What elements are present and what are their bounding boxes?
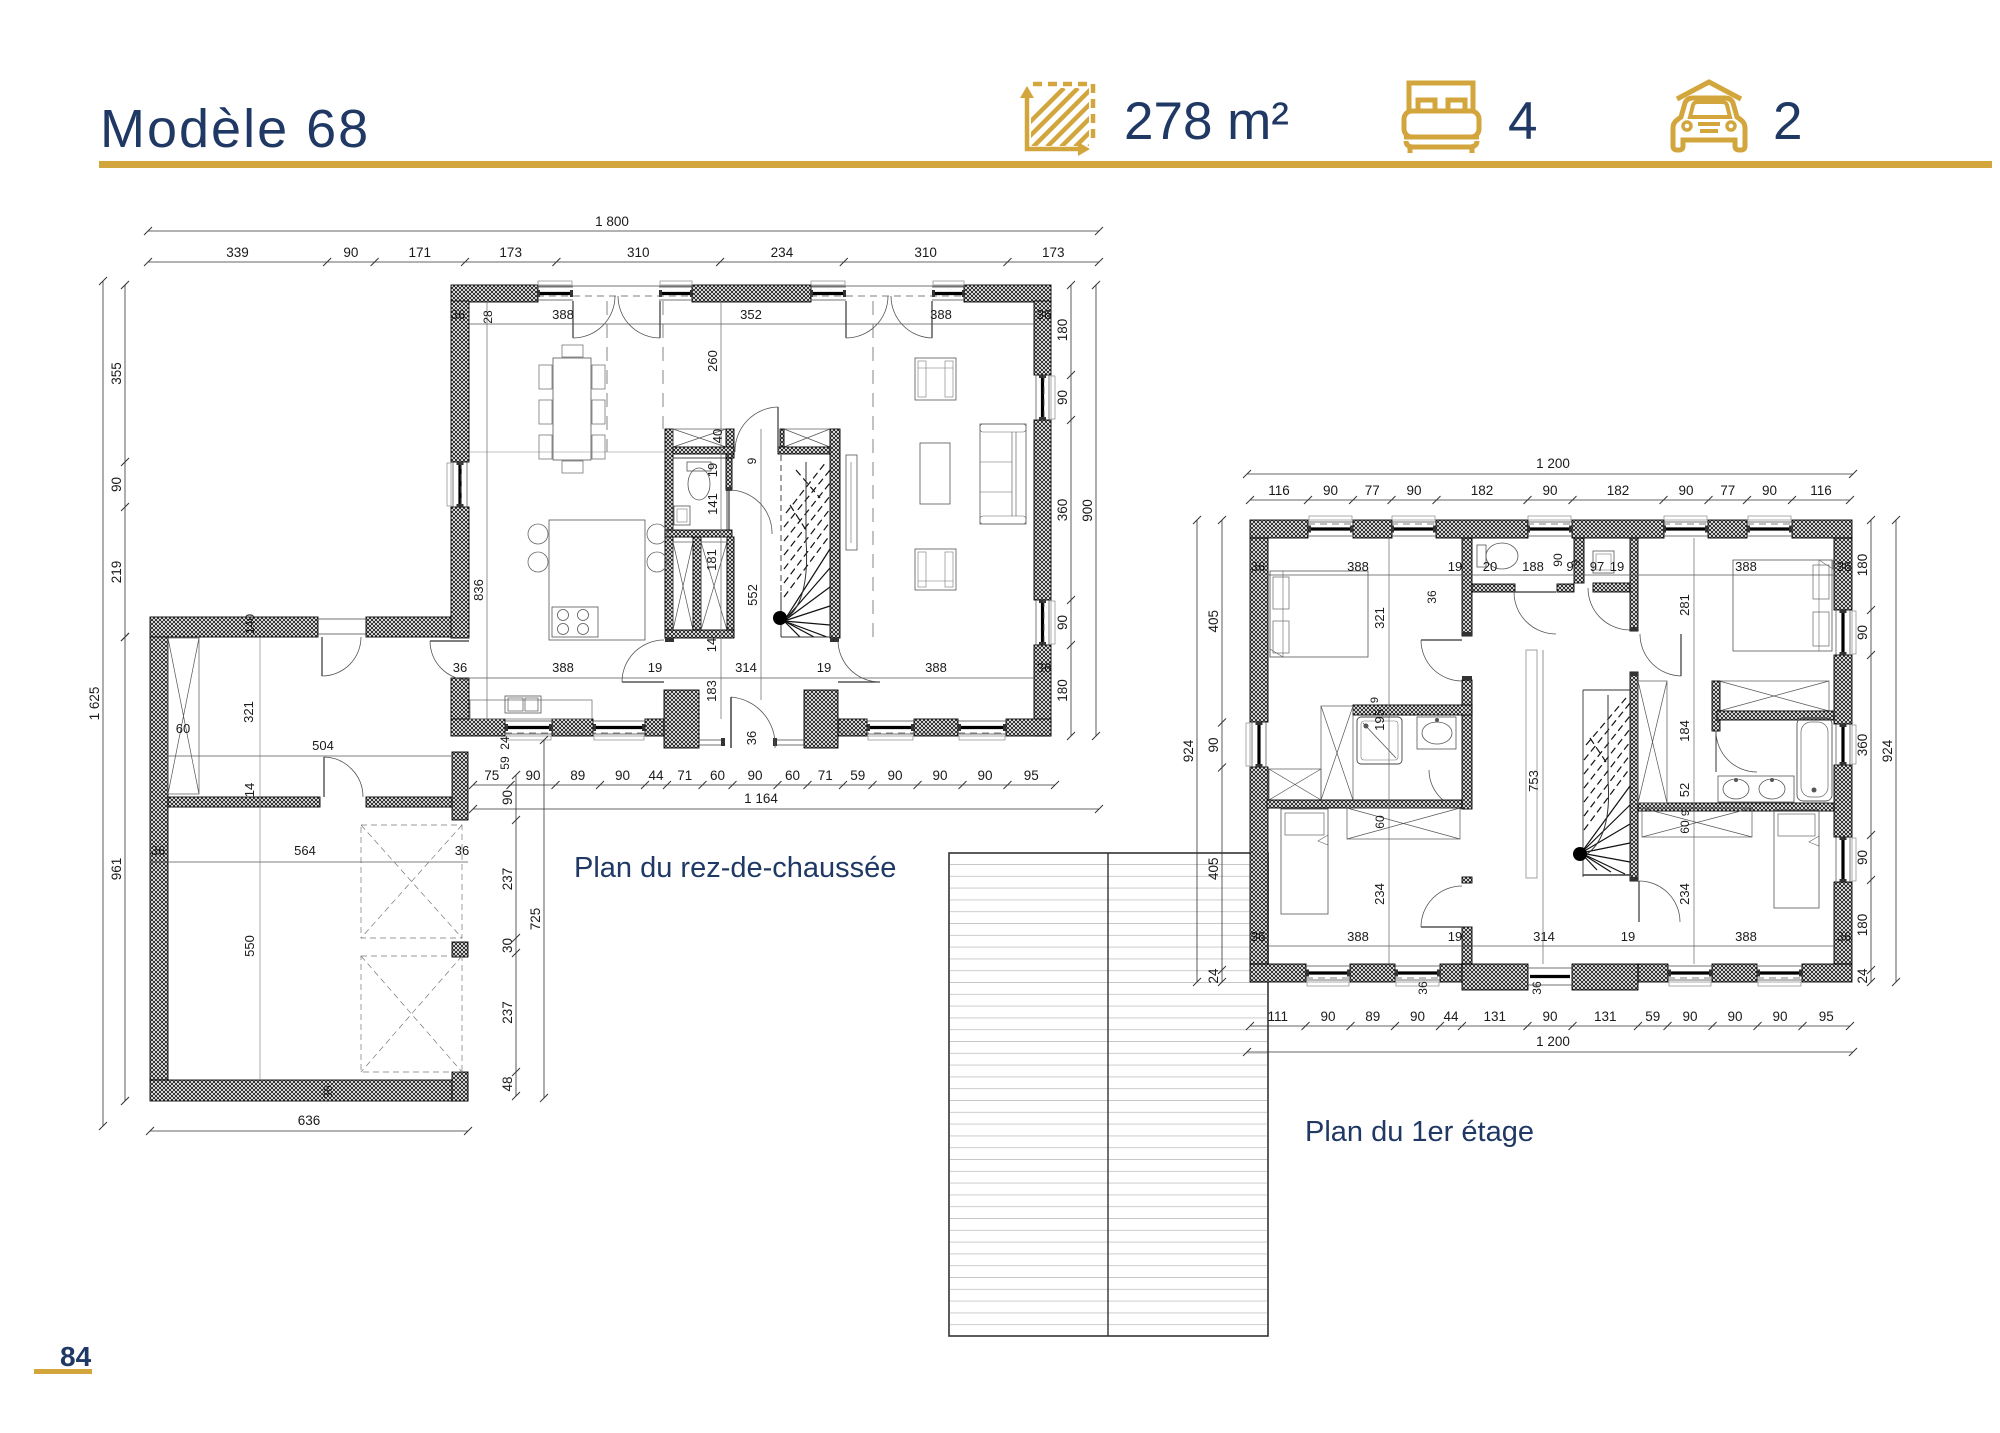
svg-text:44: 44 bbox=[648, 768, 664, 783]
svg-text:90: 90 bbox=[887, 768, 902, 783]
svg-text:19: 19 bbox=[1621, 929, 1635, 944]
svg-text:36: 36 bbox=[453, 660, 467, 675]
svg-text:310: 310 bbox=[914, 245, 937, 260]
svg-text:173: 173 bbox=[1042, 245, 1065, 260]
svg-text:116: 116 bbox=[1810, 483, 1832, 498]
svg-text:900: 900 bbox=[1080, 499, 1095, 522]
svg-text:90: 90 bbox=[977, 768, 992, 783]
svg-text:36: 36 bbox=[1425, 590, 1439, 604]
svg-text:388: 388 bbox=[1735, 559, 1757, 574]
svg-text:19: 19 bbox=[817, 660, 831, 675]
svg-text:1 200: 1 200 bbox=[1536, 1034, 1570, 1049]
svg-text:219: 219 bbox=[109, 561, 124, 584]
svg-text:725: 725 bbox=[528, 908, 543, 931]
svg-text:60: 60 bbox=[176, 721, 190, 736]
svg-text:71: 71 bbox=[818, 768, 833, 783]
svg-text:90: 90 bbox=[747, 768, 762, 783]
svg-text:564: 564 bbox=[294, 843, 316, 858]
svg-text:131: 131 bbox=[1594, 1009, 1617, 1024]
svg-text:140: 140 bbox=[243, 614, 257, 634]
svg-text:1 200: 1 200 bbox=[1536, 456, 1570, 471]
svg-text:360: 360 bbox=[1055, 499, 1070, 522]
svg-text:234: 234 bbox=[1677, 883, 1692, 905]
svg-text:90: 90 bbox=[615, 768, 630, 783]
svg-text:90: 90 bbox=[1055, 390, 1070, 405]
svg-text:314: 314 bbox=[735, 660, 757, 675]
svg-text:59: 59 bbox=[1645, 1009, 1660, 1024]
svg-text:924: 924 bbox=[1181, 739, 1196, 762]
svg-text:352: 352 bbox=[740, 307, 762, 322]
svg-text:48: 48 bbox=[500, 1076, 515, 1091]
svg-text:180: 180 bbox=[1855, 914, 1870, 937]
svg-text:60: 60 bbox=[710, 768, 725, 783]
svg-text:9: 9 bbox=[1569, 559, 1583, 566]
svg-text:388: 388 bbox=[1735, 929, 1757, 944]
svg-text:4: 4 bbox=[1508, 92, 1537, 151]
svg-text:89: 89 bbox=[1365, 1009, 1380, 1024]
svg-text:36: 36 bbox=[744, 731, 759, 745]
svg-text:90: 90 bbox=[1320, 1009, 1335, 1024]
svg-text:40: 40 bbox=[710, 429, 725, 443]
svg-text:14: 14 bbox=[242, 783, 257, 797]
svg-text:405: 405 bbox=[1206, 857, 1221, 880]
svg-text:90: 90 bbox=[1542, 1009, 1557, 1024]
svg-text:111: 111 bbox=[1267, 1009, 1288, 1024]
svg-text:90: 90 bbox=[1855, 625, 1870, 640]
svg-text:52: 52 bbox=[1677, 783, 1692, 797]
svg-text:131: 131 bbox=[1483, 1009, 1506, 1024]
svg-text:36: 36 bbox=[151, 843, 165, 858]
svg-text:24: 24 bbox=[1206, 968, 1221, 984]
svg-text:59: 59 bbox=[498, 756, 512, 770]
svg-text:19: 19 bbox=[1448, 559, 1462, 574]
svg-text:1 625: 1 625 bbox=[87, 687, 102, 721]
svg-text:183: 183 bbox=[704, 680, 719, 702]
svg-text:36: 36 bbox=[1837, 929, 1851, 944]
svg-text:1 164: 1 164 bbox=[744, 791, 778, 806]
svg-text:44: 44 bbox=[1443, 1009, 1459, 1024]
svg-text:924: 924 bbox=[1880, 739, 1895, 762]
svg-text:184: 184 bbox=[1677, 720, 1692, 742]
svg-text:Plan du rez-de-chaussée: Plan du rez-de-chaussée bbox=[574, 852, 896, 884]
svg-text:90: 90 bbox=[500, 790, 515, 805]
svg-text:278 m²: 278 m² bbox=[1124, 92, 1289, 151]
svg-text:90: 90 bbox=[109, 477, 124, 492]
svg-text:237: 237 bbox=[500, 868, 515, 891]
svg-text:552: 552 bbox=[745, 584, 760, 606]
svg-text:90: 90 bbox=[1678, 483, 1693, 498]
svg-text:19: 19 bbox=[1610, 559, 1624, 574]
svg-text:636: 636 bbox=[298, 1113, 321, 1128]
svg-text:961: 961 bbox=[109, 858, 124, 881]
svg-text:504: 504 bbox=[312, 738, 334, 753]
svg-text:182: 182 bbox=[1471, 483, 1494, 498]
svg-text:753: 753 bbox=[1526, 770, 1541, 792]
svg-text:836: 836 bbox=[471, 579, 486, 601]
svg-text:180: 180 bbox=[1055, 679, 1070, 702]
svg-text:90: 90 bbox=[932, 768, 947, 783]
svg-text:260: 260 bbox=[705, 350, 720, 372]
svg-text:237: 237 bbox=[500, 1001, 515, 1024]
svg-text:234: 234 bbox=[771, 245, 794, 260]
svg-text:19: 19 bbox=[705, 463, 720, 477]
svg-text:Plan du 1er étage: Plan du 1er étage bbox=[1305, 1116, 1534, 1148]
svg-text:388: 388 bbox=[552, 660, 574, 675]
svg-text:36: 36 bbox=[455, 843, 469, 858]
svg-text:9: 9 bbox=[1369, 697, 1381, 703]
svg-text:90: 90 bbox=[343, 245, 358, 260]
svg-text:355: 355 bbox=[109, 362, 124, 385]
svg-text:339: 339 bbox=[226, 245, 249, 260]
svg-text:388: 388 bbox=[930, 307, 952, 322]
svg-text:90: 90 bbox=[1855, 850, 1870, 865]
svg-text:1 800: 1 800 bbox=[595, 214, 629, 229]
svg-text:180: 180 bbox=[1055, 319, 1070, 342]
svg-text:9: 9 bbox=[1680, 810, 1692, 816]
svg-text:141: 141 bbox=[705, 493, 720, 515]
svg-text:195: 195 bbox=[1372, 709, 1387, 731]
svg-text:36: 36 bbox=[1416, 981, 1430, 995]
svg-text:90: 90 bbox=[1410, 1009, 1425, 1024]
svg-text:9: 9 bbox=[745, 457, 759, 464]
svg-text:97: 97 bbox=[1590, 559, 1604, 574]
svg-text:360: 360 bbox=[1855, 734, 1870, 757]
svg-text:90: 90 bbox=[1055, 615, 1070, 630]
svg-text:90: 90 bbox=[1762, 483, 1777, 498]
svg-text:20: 20 bbox=[1483, 559, 1497, 574]
svg-text:388: 388 bbox=[1347, 929, 1369, 944]
svg-text:188: 188 bbox=[1522, 559, 1544, 574]
svg-text:60: 60 bbox=[1678, 820, 1692, 834]
svg-text:36: 36 bbox=[1530, 981, 1544, 995]
svg-text:321: 321 bbox=[241, 701, 256, 723]
svg-text:388: 388 bbox=[1347, 559, 1369, 574]
svg-text:89: 89 bbox=[570, 768, 585, 783]
svg-text:30: 30 bbox=[500, 938, 515, 953]
svg-text:234: 234 bbox=[1372, 883, 1387, 905]
svg-text:28: 28 bbox=[481, 310, 495, 324]
svg-text:24: 24 bbox=[498, 736, 512, 750]
svg-text:90: 90 bbox=[1727, 1009, 1742, 1024]
svg-text:90: 90 bbox=[1206, 737, 1221, 752]
svg-text:116: 116 bbox=[1268, 483, 1290, 498]
svg-text:36: 36 bbox=[1037, 660, 1051, 675]
svg-text:60: 60 bbox=[785, 768, 800, 783]
svg-text:19: 19 bbox=[1448, 929, 1462, 944]
svg-text:310: 310 bbox=[627, 245, 650, 260]
svg-text:36: 36 bbox=[451, 307, 465, 322]
svg-text:90: 90 bbox=[525, 768, 540, 783]
svg-text:2: 2 bbox=[1773, 92, 1802, 151]
svg-text:321: 321 bbox=[1372, 607, 1387, 629]
svg-text:84: 84 bbox=[60, 1341, 92, 1372]
svg-text:71: 71 bbox=[677, 768, 692, 783]
svg-text:36: 36 bbox=[1251, 559, 1265, 574]
svg-text:388: 388 bbox=[925, 660, 947, 675]
svg-text:36: 36 bbox=[1037, 307, 1051, 322]
svg-text:405: 405 bbox=[1206, 610, 1221, 633]
svg-text:90: 90 bbox=[1323, 483, 1338, 498]
svg-text:59: 59 bbox=[850, 768, 865, 783]
svg-text:90: 90 bbox=[1551, 553, 1565, 567]
svg-text:60: 60 bbox=[1373, 815, 1387, 829]
svg-text:36: 36 bbox=[321, 1085, 335, 1099]
svg-text:90: 90 bbox=[1542, 483, 1557, 498]
svg-text:77: 77 bbox=[1720, 483, 1735, 498]
svg-text:388: 388 bbox=[552, 307, 574, 322]
svg-text:173: 173 bbox=[499, 245, 522, 260]
svg-text:77: 77 bbox=[1365, 483, 1380, 498]
svg-text:550: 550 bbox=[242, 935, 257, 957]
svg-text:Modèle 68: Modèle 68 bbox=[100, 99, 370, 159]
svg-text:14: 14 bbox=[704, 638, 719, 652]
svg-text:314: 314 bbox=[1533, 929, 1555, 944]
svg-text:90: 90 bbox=[1772, 1009, 1787, 1024]
svg-text:24: 24 bbox=[1855, 968, 1870, 984]
svg-text:75: 75 bbox=[484, 768, 499, 783]
svg-text:181: 181 bbox=[704, 549, 719, 571]
svg-text:180: 180 bbox=[1855, 554, 1870, 577]
svg-text:281: 281 bbox=[1677, 594, 1692, 616]
svg-text:182: 182 bbox=[1607, 483, 1630, 498]
svg-text:90: 90 bbox=[1682, 1009, 1697, 1024]
svg-text:19: 19 bbox=[648, 660, 662, 675]
svg-text:95: 95 bbox=[1024, 768, 1039, 783]
svg-text:171: 171 bbox=[409, 245, 432, 260]
svg-text:90: 90 bbox=[1406, 483, 1421, 498]
svg-text:36: 36 bbox=[1837, 559, 1851, 574]
svg-text:36: 36 bbox=[1251, 929, 1265, 944]
svg-text:95: 95 bbox=[1819, 1009, 1834, 1024]
